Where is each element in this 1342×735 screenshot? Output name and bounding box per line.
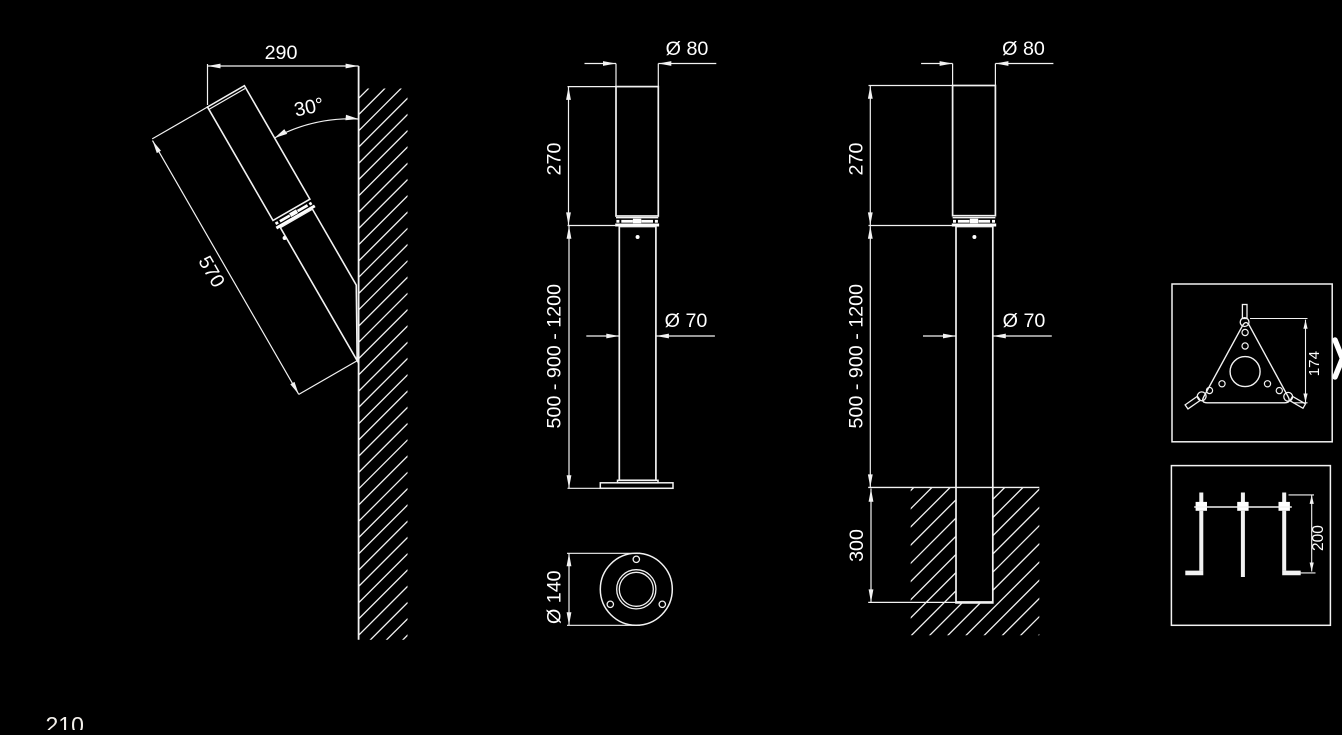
svg-text:500 - 900 - 1200: 500 - 900 - 1200 — [544, 284, 566, 429]
svg-text:Ø 70: Ø 70 — [665, 310, 708, 332]
svg-text:Ø 70: Ø 70 — [1003, 310, 1046, 332]
svg-text:210: 210 — [46, 712, 84, 730]
svg-text:290: 290 — [265, 42, 298, 64]
svg-text:200: 200 — [1310, 525, 1327, 551]
svg-text:Ø 140: Ø 140 — [543, 570, 565, 624]
svg-text:Ø 80: Ø 80 — [666, 38, 709, 60]
svg-text:300: 300 — [846, 529, 868, 562]
svg-text:Ø 80: Ø 80 — [1002, 38, 1045, 60]
svg-text:270: 270 — [845, 143, 867, 176]
svg-text:270: 270 — [544, 143, 566, 176]
svg-text:174: 174 — [1306, 351, 1323, 376]
svg-text:500 - 900 - 1200: 500 - 900 - 1200 — [845, 284, 867, 429]
